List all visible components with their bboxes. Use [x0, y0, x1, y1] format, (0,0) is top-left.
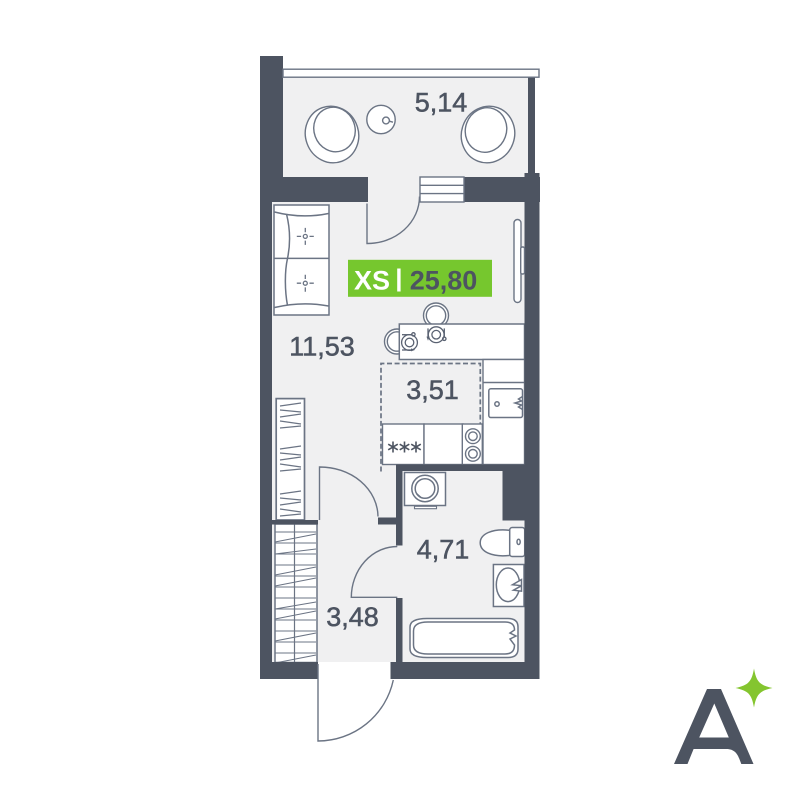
- svg-text:11,53: 11,53: [289, 332, 355, 362]
- svg-text:4,71: 4,71: [417, 535, 470, 565]
- svg-text:25,80: 25,80: [410, 266, 478, 296]
- svg-text:5,14: 5,14: [415, 88, 468, 118]
- svg-text:3,48: 3,48: [326, 602, 379, 632]
- svg-text:3,51: 3,51: [406, 375, 459, 405]
- svg-text:XS: XS: [354, 266, 390, 296]
